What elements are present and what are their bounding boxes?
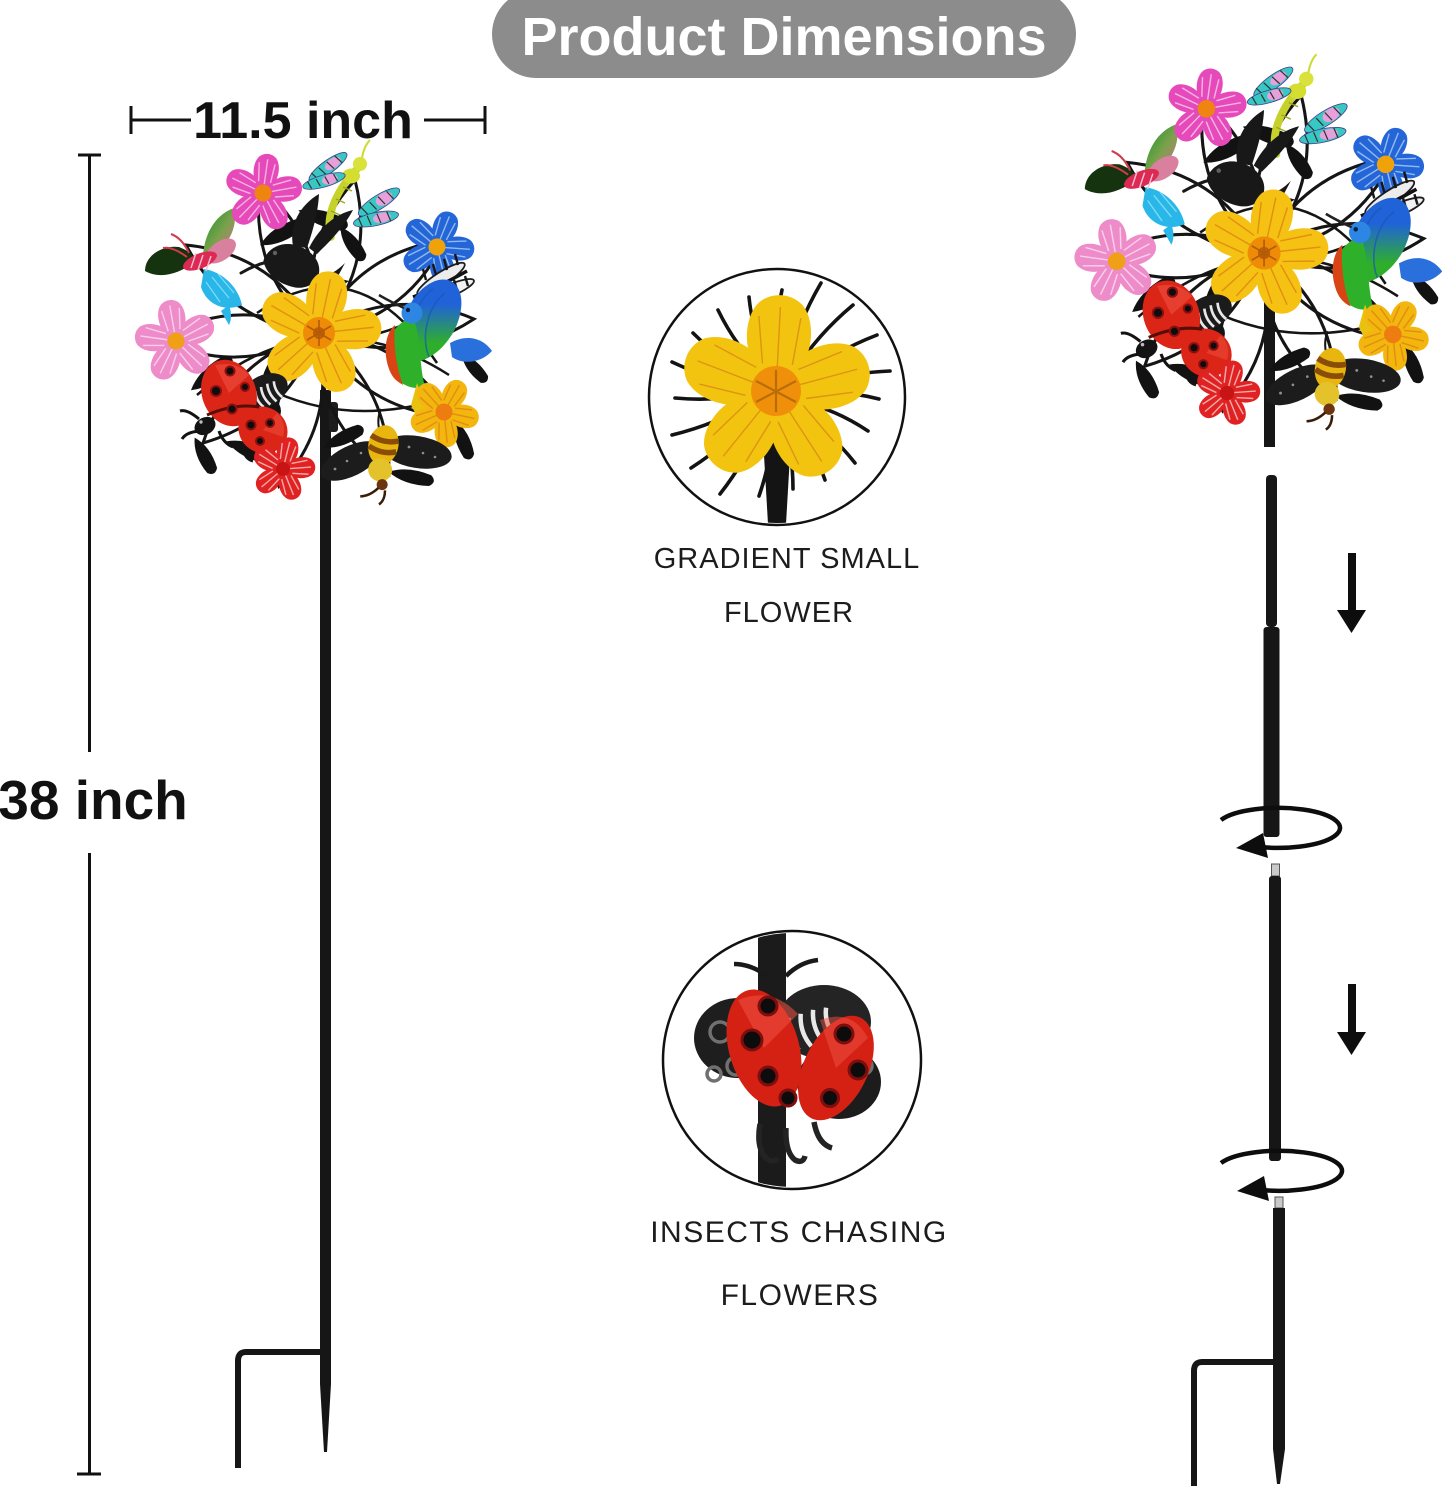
svg-text:FLOWER: FLOWER <box>724 597 854 629</box>
svg-text:Product Dimensions: Product Dimensions <box>521 7 1046 67</box>
svg-text:GRADIENT SMALL: GRADIENT SMALL <box>654 543 920 575</box>
svg-text:INSECTS CHASING: INSECTS CHASING <box>650 1216 948 1249</box>
svg-text:11.5 inch: 11.5 inch <box>193 92 413 150</box>
svg-text:FLOWERS: FLOWERS <box>721 1279 880 1312</box>
svg-text:38 inch: 38 inch <box>0 769 188 831</box>
